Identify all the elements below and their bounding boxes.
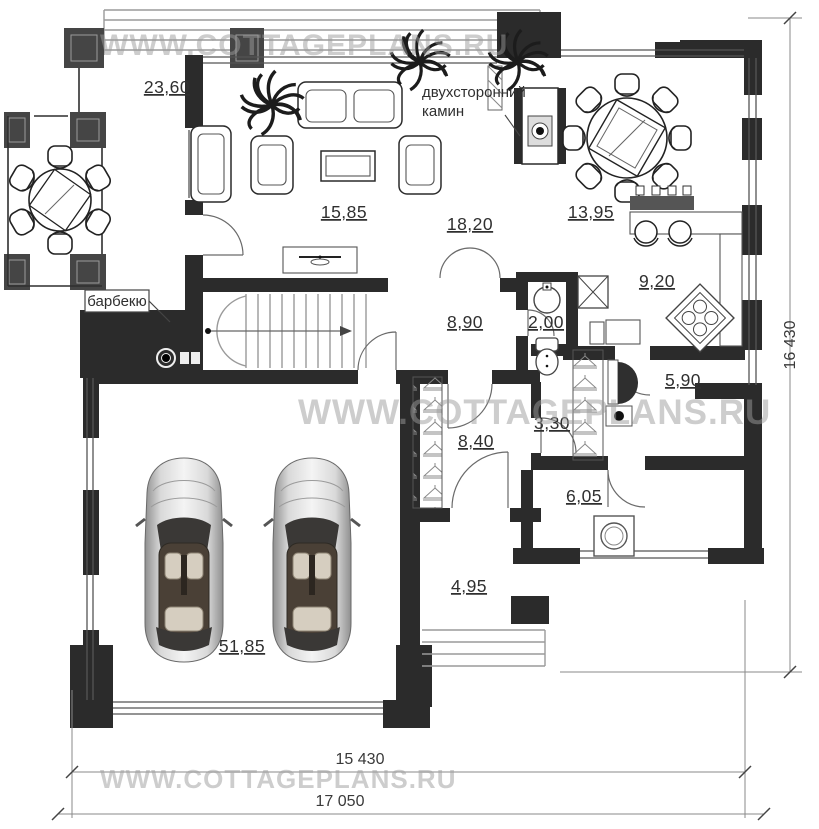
car-icon: [264, 458, 360, 662]
fireplace-icon: [488, 66, 558, 164]
washing-machine-icon: [594, 516, 634, 556]
coffee-table-icon: [321, 151, 375, 181]
watermark-top: WWW.COTTAGEPLANS.RU: [100, 29, 508, 62]
dimension-height-total: 16 430: [782, 320, 799, 369]
room-label-porch: 4,95: [451, 576, 487, 596]
room-label-kitchen: 9,20: [639, 271, 675, 291]
room-label-entry-hall: 8,40: [458, 431, 494, 451]
armchair-icon: [251, 136, 293, 194]
watermark-middle: WWW.COTTAGEPLANS.RU: [298, 393, 771, 432]
room-label-hall: 18,20: [447, 214, 493, 234]
room-label-wc: 2,00: [528, 312, 564, 332]
watermark-bottom: WWW.COTTAGEPLANS.RU: [100, 764, 456, 794]
toilet-icon: [536, 338, 558, 375]
sink-icon: [534, 283, 560, 313]
stairs-icon: [205, 294, 366, 368]
barbecue-label: барбекю: [87, 293, 147, 310]
room-label-corridor: 8,90: [447, 312, 483, 332]
dimension-width-total: 17 050: [316, 793, 365, 810]
porch-steps-icon: [422, 630, 545, 666]
floor-plan-page: барбекю двухсторонний камин 23,60 15,85 …: [0, 0, 819, 829]
room-label-garage: 51,85: [219, 636, 265, 656]
dining-table-icon: [563, 74, 691, 202]
room-label-laundry: 6,05: [566, 486, 602, 506]
fireplace-label-line2: камин: [422, 103, 464, 120]
fireplace-label-line1: двухсторонний: [422, 84, 526, 101]
floor-plan: барбекю двухсторонний камин 23,60 15,85 …: [0, 0, 819, 829]
sofa-small-icon: [191, 126, 231, 202]
car-icon: [136, 458, 232, 662]
room-label-dining-room: 13,95: [568, 202, 614, 222]
terrace-table-icon: [7, 146, 113, 254]
room-label-bathroom: 5,90: [665, 370, 701, 390]
vent-shaft-icon: [578, 276, 608, 308]
room-label-living-room: 15,85: [321, 202, 367, 222]
tv-console-icon: [283, 247, 357, 273]
sofa-icon: [298, 82, 402, 128]
dimension-bottom-outer: 17 050: [52, 793, 770, 820]
room-label-terrace: 23,60: [144, 77, 190, 97]
armchair-icon: [399, 136, 441, 194]
fireplace-callout: двухсторонний камин: [422, 84, 526, 136]
